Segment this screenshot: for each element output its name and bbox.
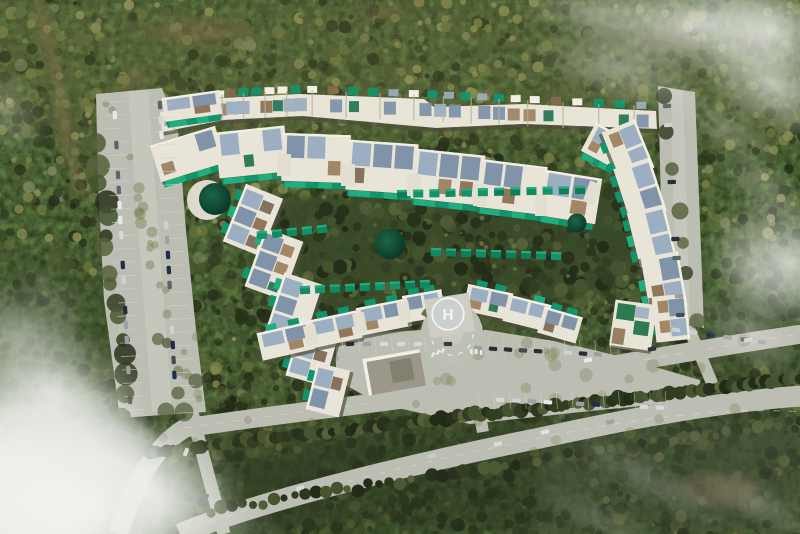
svg-text:H: H <box>442 307 453 324</box>
